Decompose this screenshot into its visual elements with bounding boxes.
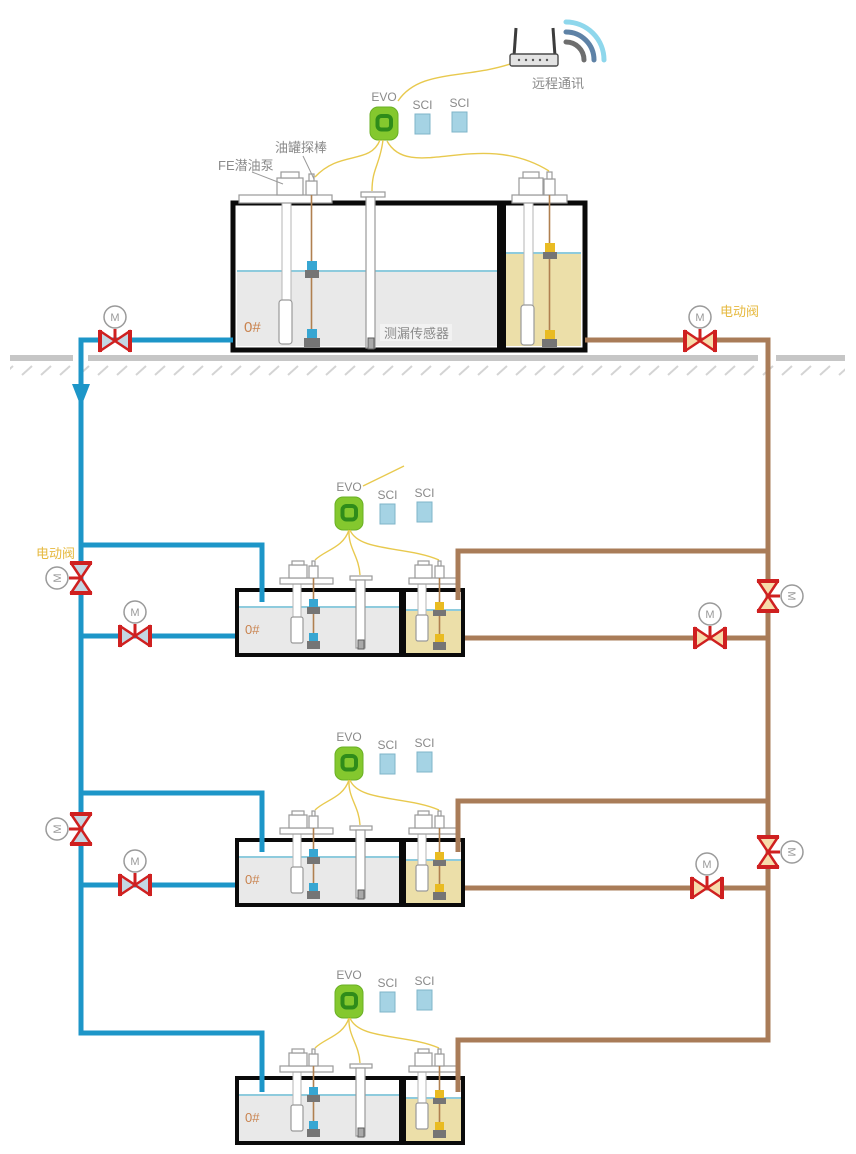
- pump-cap: [281, 172, 299, 178]
- pipe-main-blue: [81, 340, 262, 1092]
- system-diagram: M EVO SCI SCI 0#: [0, 0, 856, 1154]
- level-float: [307, 329, 317, 338]
- pipe-branch-blue: [81, 793, 262, 852]
- motor-valve-main-blue-3: [46, 814, 92, 844]
- pump-column: [524, 200, 533, 308]
- uplink-wire: [363, 466, 404, 486]
- motor-valve-main-blue-2: [46, 563, 92, 593]
- motor-valve-station2-left: [120, 601, 150, 647]
- supply-pipe-blue: [72, 340, 262, 1092]
- signal-wire: [387, 141, 549, 171]
- tank-probe-label: 油罐探棒: [275, 140, 327, 155]
- flow-arrow: [72, 384, 90, 407]
- pipe-branch-brown: [458, 551, 768, 600]
- float-clamp: [304, 338, 320, 347]
- antenna-icon: [514, 28, 516, 56]
- ground-bar: [776, 355, 845, 361]
- leak-sensor-tip: [368, 338, 374, 349]
- electric-valve-label: 电动阀: [720, 304, 759, 319]
- return-pipe-brown: [458, 340, 768, 1092]
- electric-valve-label: 电动阀: [36, 546, 75, 561]
- station-1: 0# 测漏传感器: [233, 172, 585, 350]
- level-float: [545, 243, 555, 252]
- motor-valve-main-brown-2: [757, 581, 803, 611]
- wifi-signal-icon: [566, 22, 604, 60]
- leak-sensor-label: 测漏传感器: [384, 326, 449, 341]
- router: [510, 22, 604, 66]
- submersible-pump-head: [277, 178, 303, 195]
- station-4: [237, 968, 463, 1143]
- level-float: [307, 261, 317, 270]
- motor-valve-station3-left: [120, 850, 150, 896]
- ground-bar: [10, 355, 73, 361]
- leak-sensor-tube: [366, 197, 375, 348]
- remote-comm-label: 远程通讯: [532, 76, 584, 91]
- diagram-canvas: M EVO SCI SCI 0#: [0, 0, 856, 1154]
- probe-head: [306, 181, 317, 195]
- tank-grade-label: 0#: [244, 319, 261, 336]
- pump-column: [282, 200, 291, 302]
- station-2: [237, 480, 463, 655]
- pipe-branch-brown: [458, 801, 768, 852]
- signal-wire: [372, 140, 383, 191]
- pipe-branch-blue: [81, 545, 262, 602]
- motor-valve-station2-right: [695, 603, 725, 649]
- probe-head: [544, 179, 555, 195]
- leak-tube-flange: [361, 192, 385, 197]
- antenna-icon: [553, 28, 555, 56]
- float-clamp: [305, 270, 319, 278]
- ground-bar: [88, 355, 758, 361]
- submersible-pump-head: [519, 178, 543, 195]
- pipe-main-brown: [458, 340, 768, 1092]
- pump-cap: [523, 172, 539, 178]
- fe-pump-label: FE潜油泵: [218, 158, 274, 173]
- motor-valve-main-brown-3: [757, 837, 803, 867]
- motor-valve-station1-right: [685, 306, 715, 352]
- float-clamp: [543, 252, 557, 259]
- probe-stem: [547, 172, 552, 179]
- motor-valve-station3-right: [692, 853, 722, 899]
- evo-sci-cluster-1: [370, 90, 470, 140]
- pump-cylinder: [279, 300, 292, 344]
- motor-valve-station1-left: [100, 306, 130, 352]
- float-clamp: [542, 339, 557, 347]
- ground-line: [10, 355, 845, 377]
- manhole-flange: [512, 195, 567, 203]
- station-3: [237, 730, 463, 905]
- level-float: [545, 330, 555, 339]
- pump-cylinder: [521, 305, 534, 345]
- tank-divider-wall: [497, 205, 506, 348]
- tank-liquid-gasoline: [506, 253, 581, 346]
- manhole-flange: [239, 195, 332, 203]
- ground-hatching: [10, 362, 845, 377]
